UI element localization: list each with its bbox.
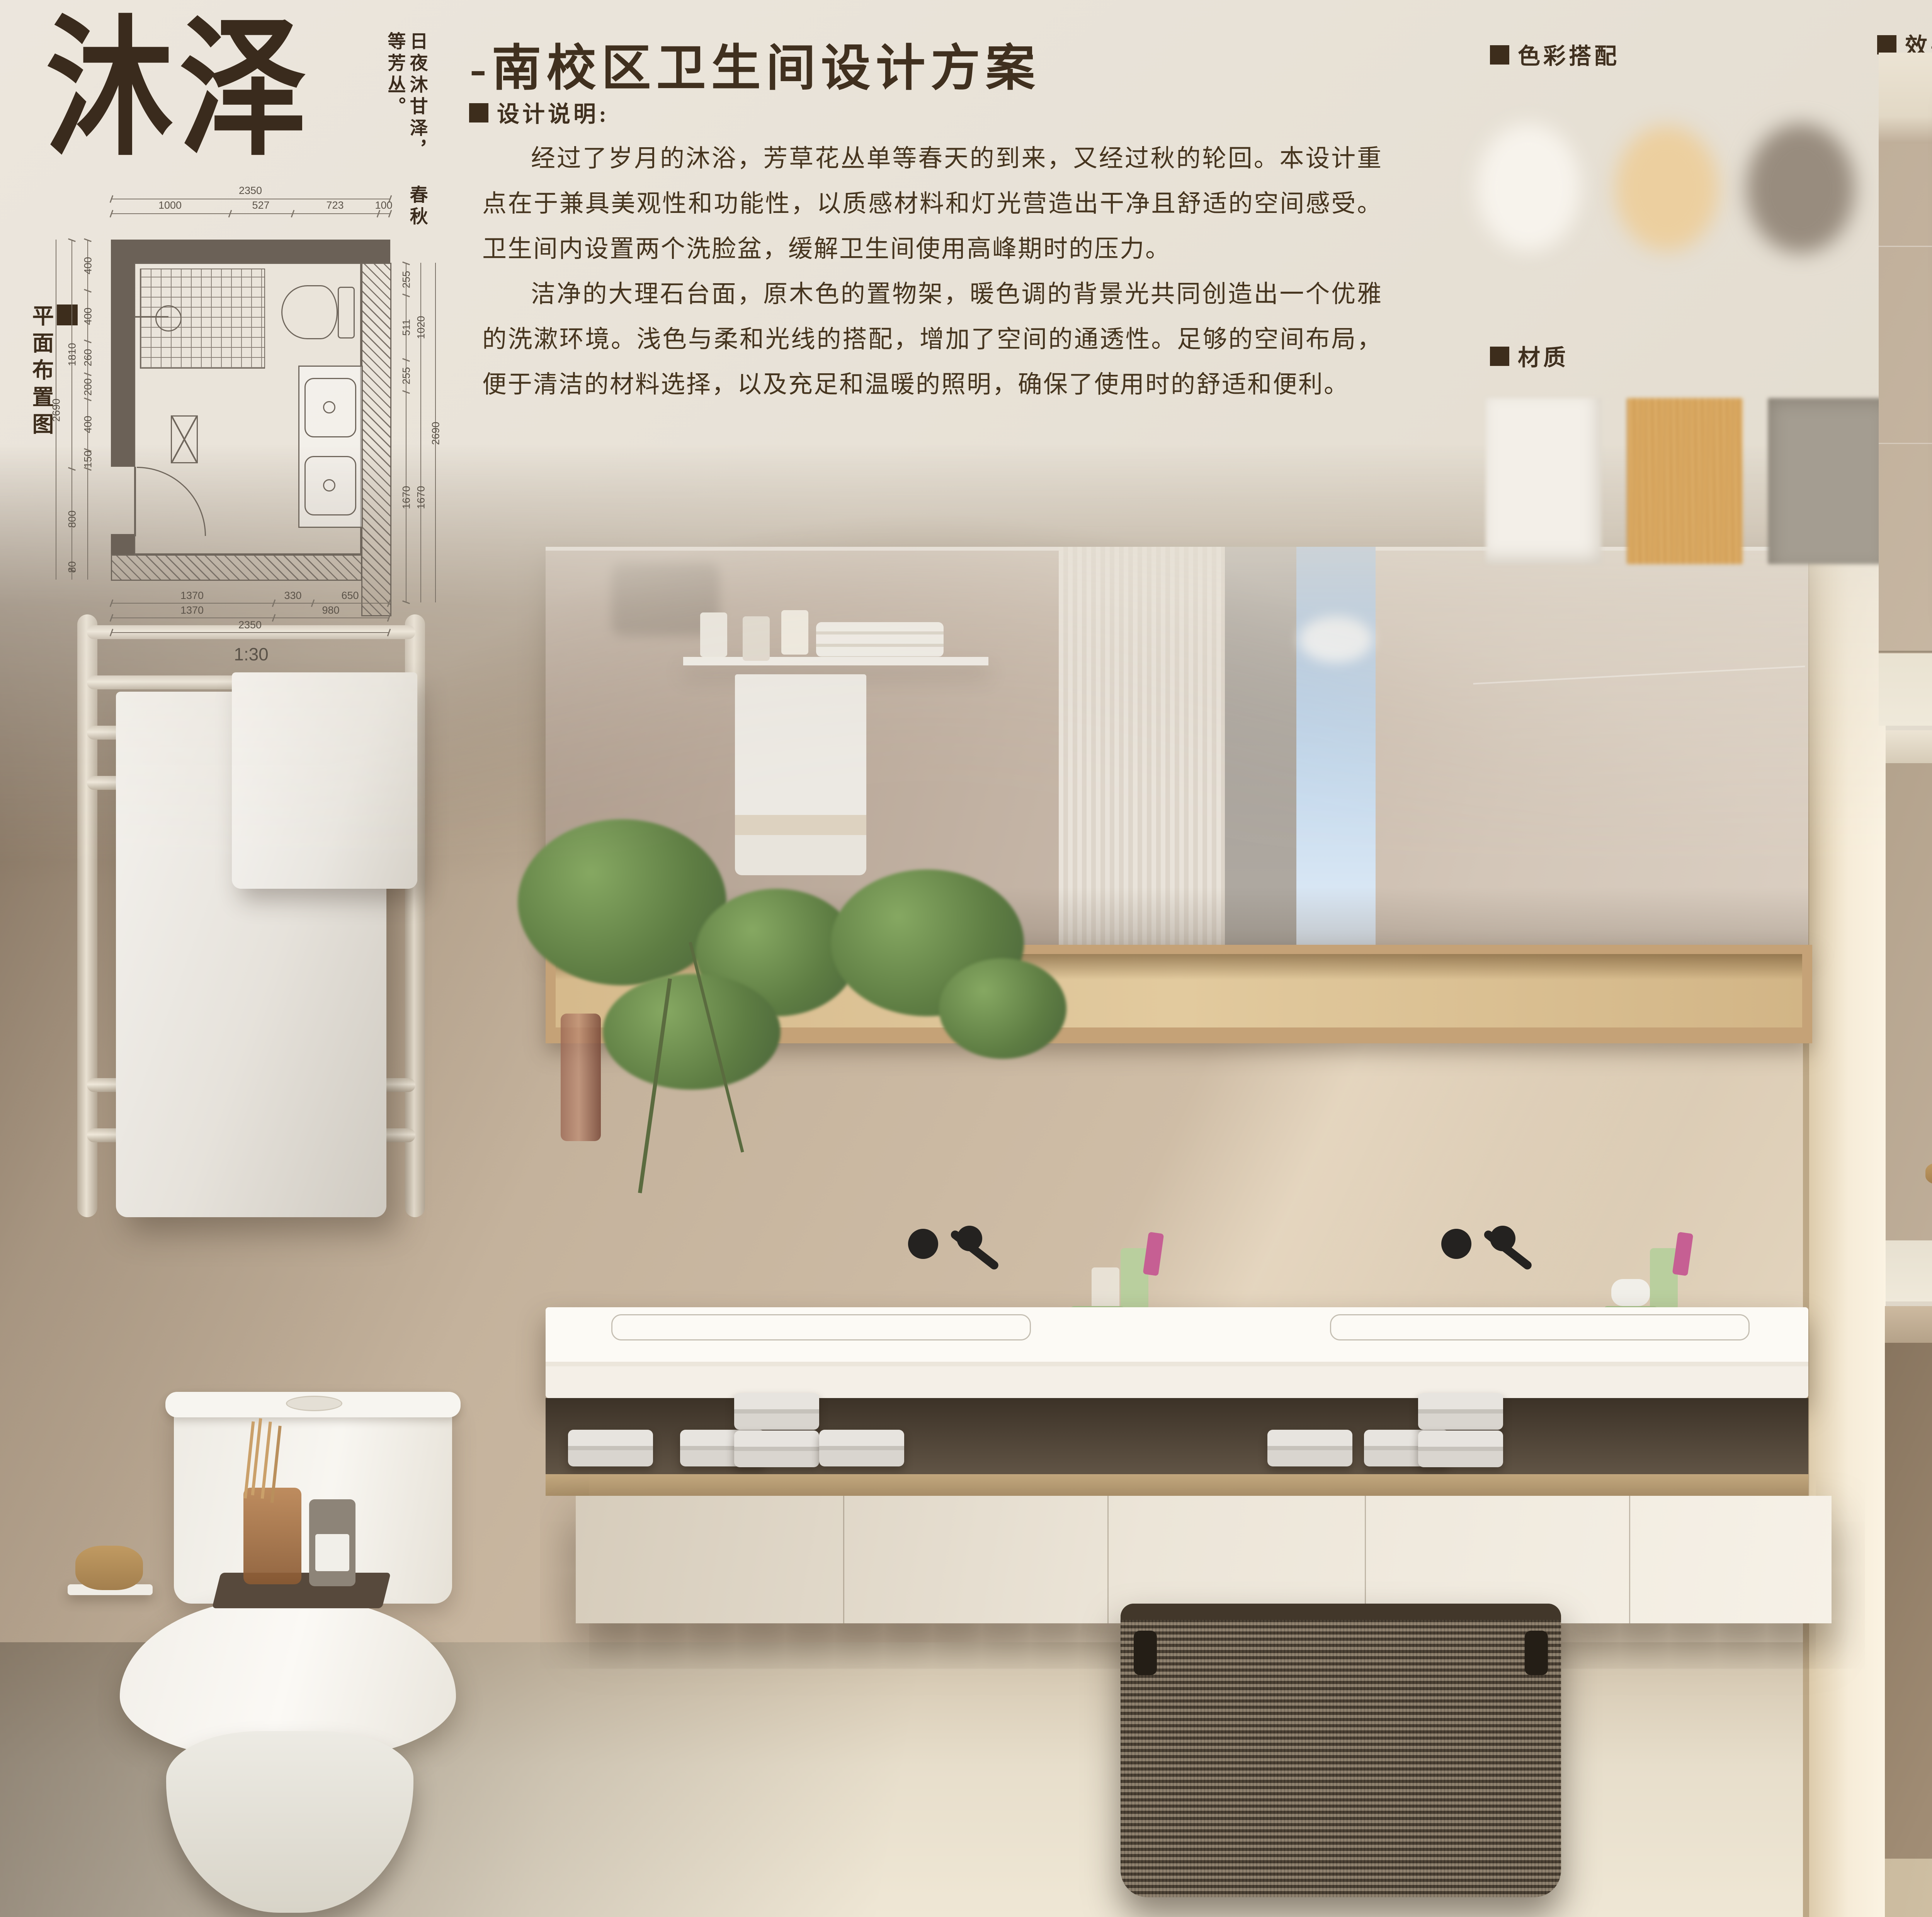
effect-render-vanity-day: [1886, 730, 1932, 1301]
plant-foliage: [939, 958, 1066, 1059]
folded-towels: [1267, 1430, 1352, 1466]
drawer-seam: [1629, 1496, 1630, 1623]
plan-wall-top: [111, 240, 390, 263]
plan-wall-left: [111, 240, 134, 467]
plan-sink-bottom-drain: [323, 479, 335, 492]
plan-wall-right-hatched: [361, 263, 391, 616]
toilet-paper-roll: [75, 1546, 143, 1590]
towel-warmer-rail-left: [77, 614, 97, 1217]
window-wall: [1803, 444, 1886, 1917]
green-cup: [1650, 1248, 1678, 1310]
materials-heading-label: 材质: [1518, 345, 1569, 370]
folded-towels: [734, 1431, 819, 1467]
dim-label: 255: [401, 257, 413, 303]
folded-towels: [1418, 1393, 1503, 1430]
dim-label: 1370: [169, 604, 215, 616]
floor: [1885, 1859, 1932, 1917]
description-paragraph: 洁净的大理石台面，原木色的置物架，暖色调的背景光共同创造出一个优雅的洗漱环境。浅…: [482, 272, 1383, 407]
dim-label: 1000: [147, 199, 193, 211]
dim-label: 80: [66, 544, 78, 590]
effect-render-shower: [1879, 53, 1932, 726]
plan-door-leaf: [134, 467, 136, 536]
dim-label: 100: [366, 199, 401, 211]
palette-color-swatch-3: [1747, 124, 1855, 253]
diffuser-bottle: [243, 1488, 301, 1584]
dim-label: 2350: [227, 619, 273, 631]
hanging-hand-towel: [232, 672, 417, 889]
palette-color-swatch-2: [1615, 126, 1719, 251]
materials-section-heading: 材质: [1490, 339, 1569, 372]
plant-foliage: [603, 974, 781, 1090]
wall-seam: [1879, 246, 1932, 247]
wall-faucet-right: [1441, 1229, 1471, 1259]
dim-label: 511: [401, 304, 413, 351]
mirror-reflected-cloud: [1299, 616, 1372, 663]
green-cup: [1121, 1248, 1148, 1310]
plan-shower-arm: [135, 316, 168, 318]
plan-shower-head-symbol: [155, 305, 182, 332]
diffuser-tray: [212, 1573, 391, 1608]
ceiling: [1886, 730, 1932, 763]
pink-brush: [1672, 1232, 1694, 1276]
plan-scale: 1:30: [216, 644, 286, 665]
slogan-line-right: 日夜沐甘泽，: [407, 32, 427, 162]
basin-recess-left: [611, 1314, 1031, 1340]
dim-label: 2690: [51, 387, 63, 434]
ceiling: [1879, 53, 1932, 143]
material-swatch-wood: [1627, 398, 1743, 564]
ceiling: [1885, 1306, 1932, 1343]
folded-towels: [568, 1430, 653, 1466]
lotion-bottle-label: [315, 1534, 349, 1571]
folded-towels: [819, 1430, 904, 1466]
material-swatch-tile: [1768, 398, 1884, 564]
wall-seam: [1879, 443, 1932, 444]
dim-label: 400: [82, 243, 94, 289]
basket-handle: [1134, 1631, 1157, 1675]
basin-recess-right: [1330, 1314, 1750, 1340]
basket-handle: [1525, 1631, 1548, 1675]
folded-towels: [734, 1393, 819, 1430]
dim-label: 2350: [227, 185, 274, 197]
dim-label: 1810: [66, 332, 78, 378]
material-swatch-paint: [1486, 398, 1602, 564]
white-towel-roll: [1611, 1279, 1650, 1306]
section-bullet-icon: [1490, 347, 1509, 366]
drawer-seam: [1107, 1496, 1109, 1623]
mirror-reflected-wall-seam: [1473, 665, 1805, 684]
glass-cup: [1092, 1267, 1119, 1312]
palette-section-heading: 色彩搭配: [1490, 38, 1620, 70]
page-title: -南校区卫生间设计方案: [470, 28, 1041, 99]
dim-label: 330: [270, 590, 316, 602]
shower-floor: [1879, 653, 1932, 726]
plan-cabinet-symbol: [171, 415, 198, 463]
dim-label: 1670: [401, 475, 413, 521]
dim-label: 1370: [169, 590, 215, 602]
pink-brush: [1143, 1232, 1164, 1276]
dim-label: 255: [401, 353, 413, 399]
dim-label: 150: [82, 436, 94, 483]
basket-rim: [1121, 1604, 1561, 1620]
mirror-reflected-shelf: [683, 657, 988, 665]
floor-step-line: [1879, 651, 1932, 653]
plan-wall-left-stub: [111, 534, 134, 555]
plan-toilet-tank: [338, 287, 355, 338]
dim-line: [111, 213, 390, 214]
description-paragraph: 经过了岁月的沐浴，芳草花丛单等春天的到来，又经过秋的轮回。本设计重点在于兼具美观…: [482, 136, 1383, 272]
plant-vase: [561, 1014, 601, 1141]
dim-line: [111, 617, 389, 618]
drawer-seam: [843, 1496, 844, 1623]
wall-faucet-left: [908, 1229, 938, 1259]
folded-towels: [1418, 1431, 1503, 1467]
section-bullet-icon: [1877, 35, 1896, 54]
toilet-paper-roll: [1925, 1162, 1932, 1185]
dim-label: 527: [238, 199, 284, 211]
dim-label: 1020: [415, 304, 427, 351]
toilet-flush-button: [286, 1396, 342, 1411]
section-bullet-icon: [469, 103, 488, 122]
palette-heading-label: 色彩搭配: [1518, 44, 1620, 69]
shelf-board: [546, 1474, 1808, 1496]
mirror-reflected-hanging-towel: [735, 674, 866, 875]
dim-line: [111, 603, 389, 604]
vanity-mirror: [546, 547, 1808, 951]
dim-label: 2690: [430, 410, 442, 457]
mirror-reflected-bottles: [700, 612, 727, 657]
dim-label: 800: [66, 496, 78, 543]
floor: [1886, 1240, 1932, 1301]
desc-section-heading: 设计说明:: [469, 96, 609, 128]
plan-toilet-bowl: [281, 285, 338, 339]
brand-logo: 沐泽: [46, 15, 313, 166]
dim-label: 650: [327, 590, 373, 602]
dim-label: 723: [312, 199, 358, 211]
vanity-counter: [546, 1307, 1808, 1398]
design-description: 经过了岁月的沐浴，芳草花丛单等春天的到来，又经过秋的轮回。本设计重点在于兼具美观…: [482, 136, 1383, 407]
desc-heading-label: 设计说明:: [497, 102, 609, 127]
mirror-reflected-towel-roll: [816, 622, 944, 657]
dim-label: 400: [82, 293, 94, 340]
dim-line: [111, 632, 389, 633]
laundry-basket: [1121, 1604, 1561, 1897]
plan-wall-bottom-hatched: [111, 555, 362, 581]
section-bullet-icon: [1490, 45, 1509, 65]
floor-plan: 2350 1000 527 723 100 2690 1810 800 80 4…: [50, 189, 468, 672]
palette-color-swatch-1: [1477, 124, 1580, 251]
plan-sink-top-drain: [323, 401, 335, 413]
design-poster: 沐泽 日夜沐甘泽， 春秋等芳丛。 -南校区卫生间设计方案 设计说明: 经过了岁月…: [0, 0, 1932, 1917]
floor-plan-label-text: 平面布置图: [29, 304, 53, 440]
dim-label: 1670: [415, 475, 427, 521]
effect-render-vanity-evening: [1885, 1306, 1932, 1917]
dim-label: 980: [308, 604, 354, 616]
